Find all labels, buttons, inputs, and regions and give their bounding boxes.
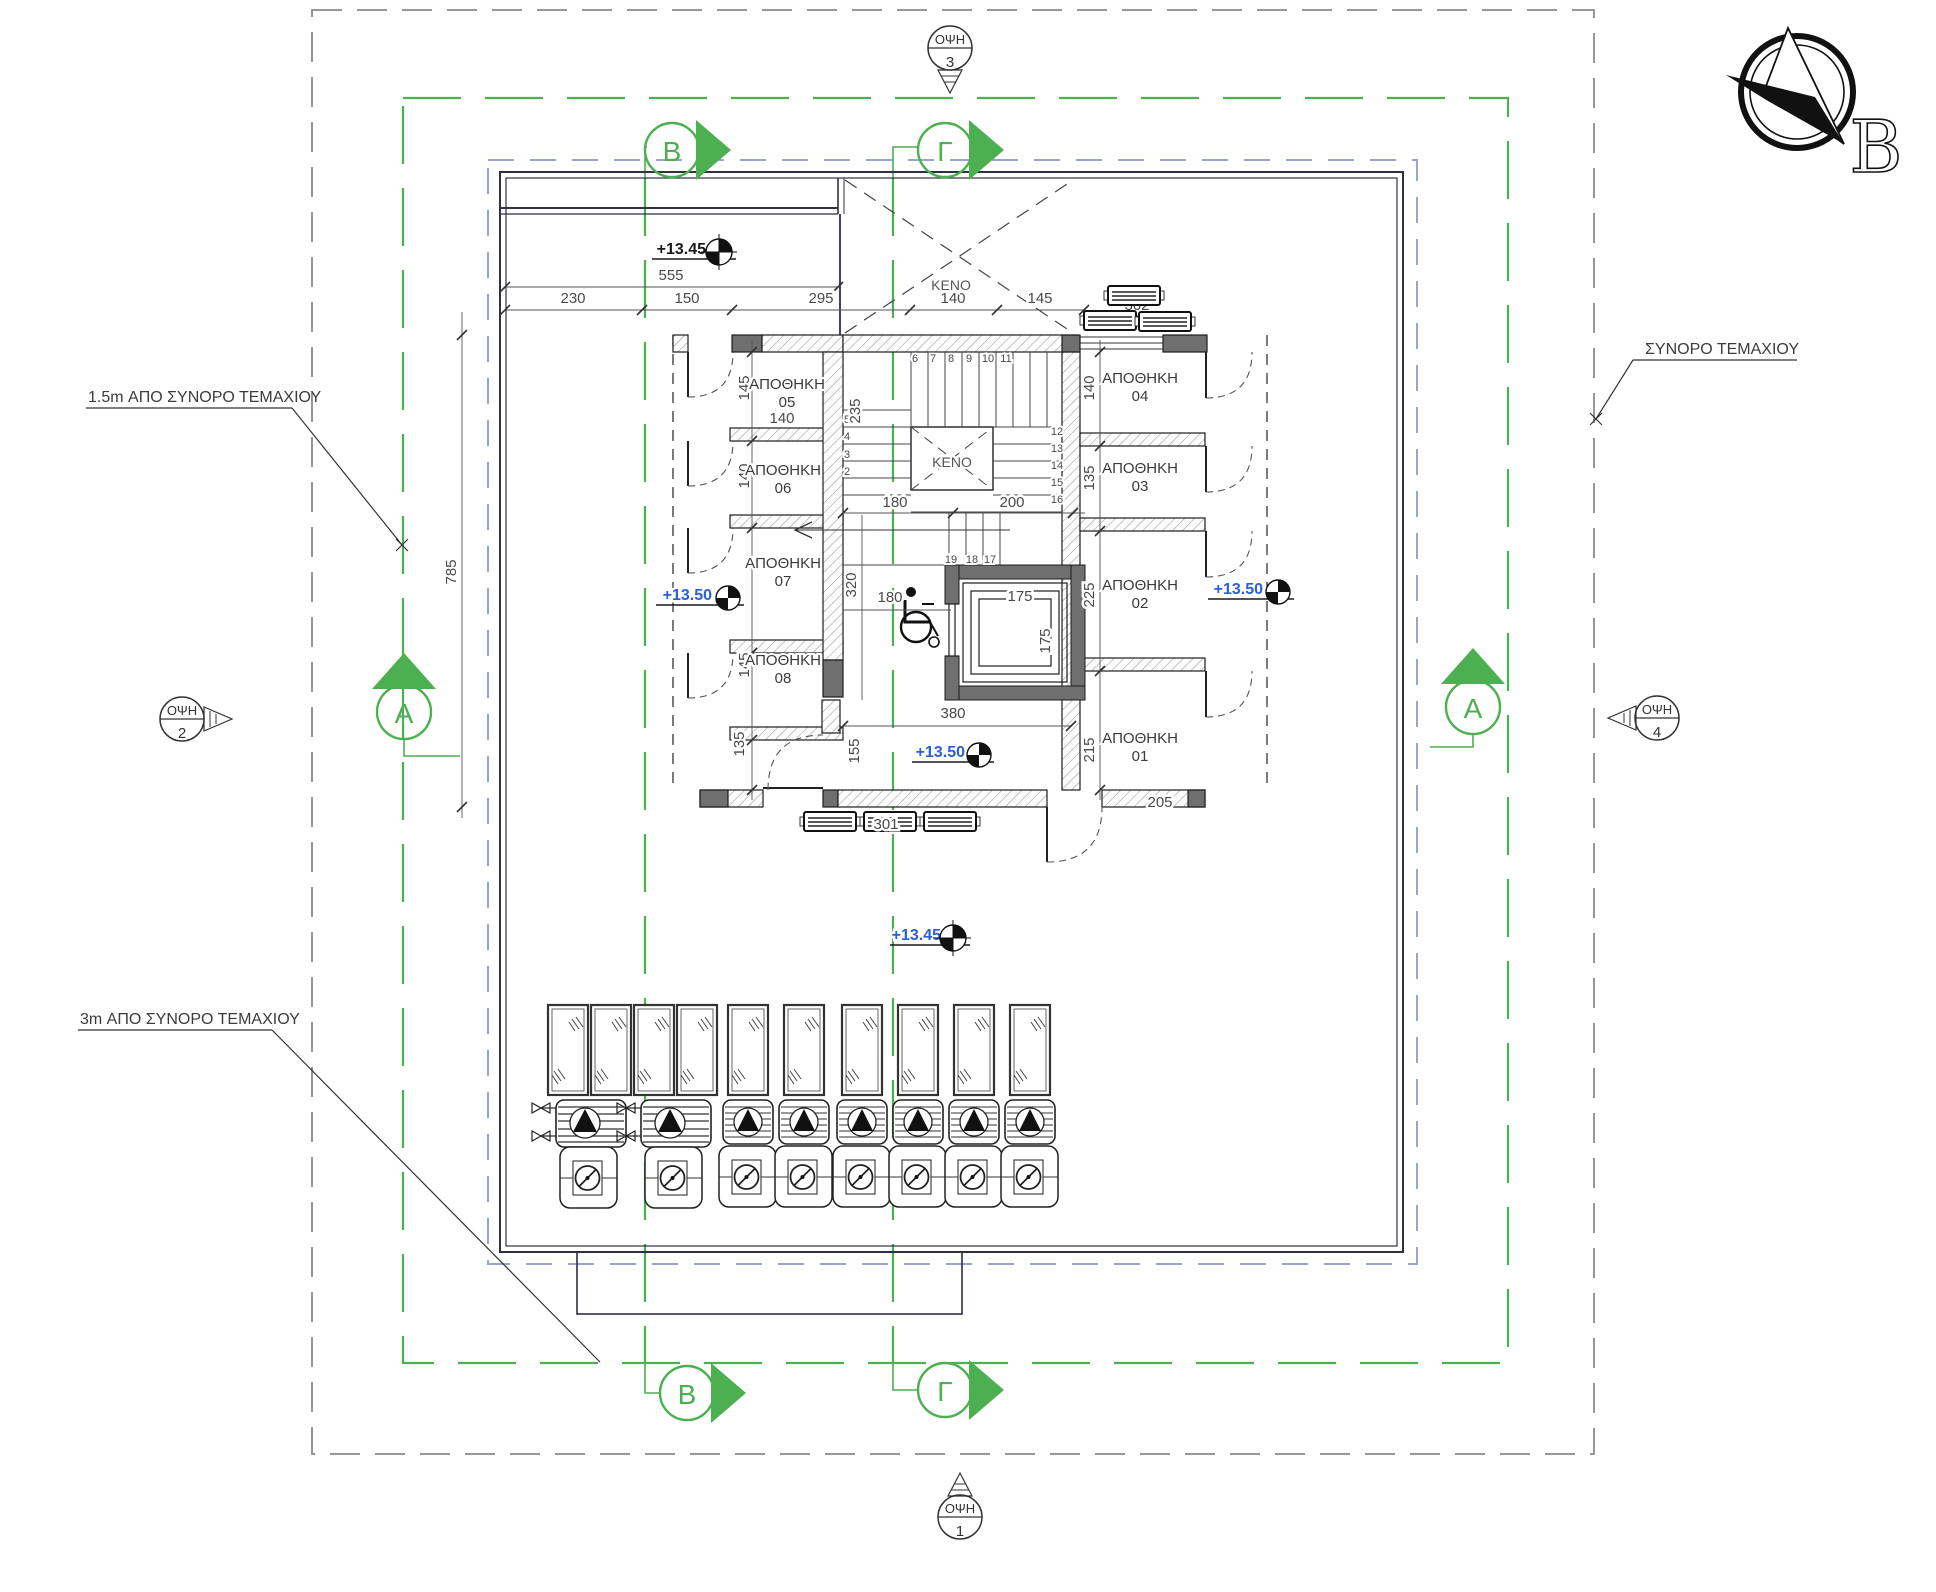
void-roof-label: ΚΕΝΟ xyxy=(931,277,971,293)
room-04-num: 04 xyxy=(1132,388,1149,405)
boundary-right-label: ΣΥΝΟΡΟ ΤΕΜΑΧΙΟΥ xyxy=(1645,341,1799,358)
section-letter: Γ xyxy=(937,136,952,167)
riser-number: 7 xyxy=(930,353,936,365)
room-03-num: 03 xyxy=(1132,478,1149,495)
riser-number: 8 xyxy=(948,353,954,365)
setback-left-label: 1.5m ΑΠΟ ΣΥΝΟΡΟ ΤΕΜΑΧΙΟΥ xyxy=(88,389,321,406)
elevation-value: +13.50 xyxy=(1214,581,1263,598)
riser-number: 15 xyxy=(1051,477,1063,489)
dim-r01-w: 205 xyxy=(1147,794,1172,811)
room-07-num: 07 xyxy=(775,573,792,590)
section-letter: Α xyxy=(395,698,414,729)
elevation-storage-right: +13.50 xyxy=(1208,580,1294,604)
room-01-label: ΑΠΟΘΗΚΗ xyxy=(1102,730,1178,747)
elevation-value: +13.45 xyxy=(892,927,941,944)
room-06-num: 06 xyxy=(775,480,792,497)
room-02-num: 02 xyxy=(1132,595,1149,612)
elevation-value: +13.45 xyxy=(657,241,706,258)
dim-run-right: 200 xyxy=(999,494,1024,511)
dim-lobby-w: 180 xyxy=(877,589,902,606)
dim-cab-w: 175 xyxy=(1007,588,1032,605)
riser-number: 18 xyxy=(966,554,978,566)
room-05-label: ΑΠΟΘΗΚΗ xyxy=(749,376,825,393)
dim-150: 150 xyxy=(674,290,699,307)
dim-r03-h: 135 xyxy=(1081,465,1098,490)
north-compass: B xyxy=(1726,28,1902,189)
solar-unit xyxy=(945,1005,1002,1207)
riser-number: 17 xyxy=(984,554,996,566)
lower-terrace-outline xyxy=(577,1252,962,1314)
dim-south-h: 135 xyxy=(731,731,748,756)
dim-stair-width: 235 xyxy=(847,398,864,423)
solar-unit xyxy=(719,1005,776,1207)
solar-unit xyxy=(1001,1005,1058,1207)
dim-south-w: 155 xyxy=(846,738,863,763)
room-06-label: ΑΠΟΘΗΚΗ xyxy=(745,462,821,479)
section-marker-g-bottom: Γ xyxy=(918,1360,1004,1420)
dim-230: 230 xyxy=(560,290,585,307)
elevation-roof-top: +13.45 xyxy=(652,234,737,270)
floor-plan-drawing: 6 7 8 9 10 11 12 13 14 15 16 19 18 17 5 … xyxy=(0,0,1936,1592)
dim-run-left: 180 xyxy=(882,494,907,511)
elevation-core: +13.50 xyxy=(912,743,994,767)
riser-number: 12 xyxy=(1051,426,1063,438)
riser-number: 11 xyxy=(1000,353,1011,365)
view-label: ΟΨΗ xyxy=(167,703,197,718)
setback-bottom-label: 3m ΑΠΟ ΣΥΝΟΡΟ ΤΕΜΑΧΙΟΥ xyxy=(80,1011,300,1028)
solar-unit xyxy=(775,1005,832,1207)
view-number: 4 xyxy=(1653,724,1661,741)
dim-core-w: 380 xyxy=(940,705,965,722)
dim-r04-h: 140 xyxy=(1081,375,1098,400)
room-04-label: ΑΠΟΘΗΚΗ xyxy=(1102,370,1178,387)
section-markers: Β Γ Β Γ Α Α xyxy=(372,120,1505,1423)
room-02-label: ΑΠΟΘΗΚΗ xyxy=(1102,577,1178,594)
dim-total-top: 555 xyxy=(658,267,683,284)
dim-r05-w: 140 xyxy=(769,410,794,427)
dim-r01-h: 215 xyxy=(1081,737,1098,762)
dim-cab-h: 175 xyxy=(1037,628,1054,653)
room-07-label: ΑΠΟΘΗΚΗ xyxy=(745,555,821,572)
elevation-value: +13.50 xyxy=(663,587,712,604)
view-marker-4: ΟΨΗ 4 xyxy=(1608,696,1679,741)
section-marker-b-bottom: Β xyxy=(660,1363,746,1423)
view-number: 1 xyxy=(956,1523,964,1540)
riser-number: 13 xyxy=(1051,443,1063,455)
view-label: ΟΨΗ xyxy=(1642,702,1672,717)
riser-number: 9 xyxy=(966,353,972,365)
riser-number: 10 xyxy=(982,353,994,365)
dim-145: 145 xyxy=(1027,290,1052,307)
view-markers: ΟΨΗ 3 ΟΨΗ 1 ΟΨΗ 2 ΟΨΗ 4 xyxy=(160,26,1679,1540)
solar-unit-wide xyxy=(532,1005,631,1208)
plot-boundary xyxy=(312,10,1594,1454)
view-number: 2 xyxy=(178,725,186,742)
solar-units xyxy=(532,1005,1058,1208)
riser-number: 6 xyxy=(912,353,918,365)
riser-number: 2 xyxy=(844,466,850,478)
riser-number: 4 xyxy=(844,431,850,443)
dim-lobby-h: 320 xyxy=(843,572,860,597)
solar-unit xyxy=(889,1005,946,1207)
wheelchair-icon xyxy=(901,588,939,648)
dim-r02-h: 225 xyxy=(1081,582,1098,607)
riser-number: 14 xyxy=(1051,460,1063,472)
view-marker-3: ΟΨΗ 3 xyxy=(928,26,972,93)
ac-bottom-label: 301 xyxy=(873,816,898,833)
boundary-labels: 1.5m ΑΠΟ ΣΥΝΟΡΟ ΤΕΜΑΧΙΟΥ 3m ΑΠΟ ΣΥΝΟΡΟ Τ… xyxy=(78,341,1799,1362)
section-letter: Β xyxy=(678,1379,697,1410)
void-stair-label: ΚΕΝΟ xyxy=(932,454,972,470)
north-letter: B xyxy=(1850,105,1903,189)
view-label: ΟΨΗ xyxy=(935,32,965,47)
room-08-num: 08 xyxy=(775,670,792,687)
dim-total-left: 785 xyxy=(443,559,460,584)
room-08-label: ΑΠΟΘΗΚΗ xyxy=(745,652,821,669)
ac-units-top: 302 xyxy=(1080,286,1195,331)
floor-plan-canvas: 6 7 8 9 10 11 12 13 14 15 16 19 18 17 5 … xyxy=(0,0,1936,1592)
solar-unit xyxy=(833,1005,890,1207)
room-03-label: ΑΠΟΘΗΚΗ xyxy=(1102,460,1178,477)
section-letter: Α xyxy=(1464,693,1483,724)
riser-number: 3 xyxy=(844,449,850,461)
room-05-num: 05 xyxy=(779,394,796,411)
elevation-value: +13.50 xyxy=(916,744,965,761)
view-marker-2: ΟΨΗ 2 xyxy=(160,697,232,742)
view-marker-1: ΟΨΗ 1 xyxy=(938,1473,982,1540)
view-label: ΟΨΗ xyxy=(945,1501,975,1516)
ac-units-bottom: 301 xyxy=(800,812,980,833)
section-marker-a-right: Α xyxy=(1441,648,1505,734)
view-number: 3 xyxy=(946,54,954,71)
section-letter: Γ xyxy=(937,1376,952,1407)
room-01-num: 01 xyxy=(1132,748,1149,765)
dim-295: 295 xyxy=(808,290,833,307)
section-letter: Β xyxy=(663,136,682,167)
riser-number: 19 xyxy=(945,554,957,566)
riser-number: 16 xyxy=(1051,494,1063,506)
elevation-terrace: +13.45 xyxy=(890,920,971,956)
elevation-storage-left: +13.50 xyxy=(656,586,744,610)
